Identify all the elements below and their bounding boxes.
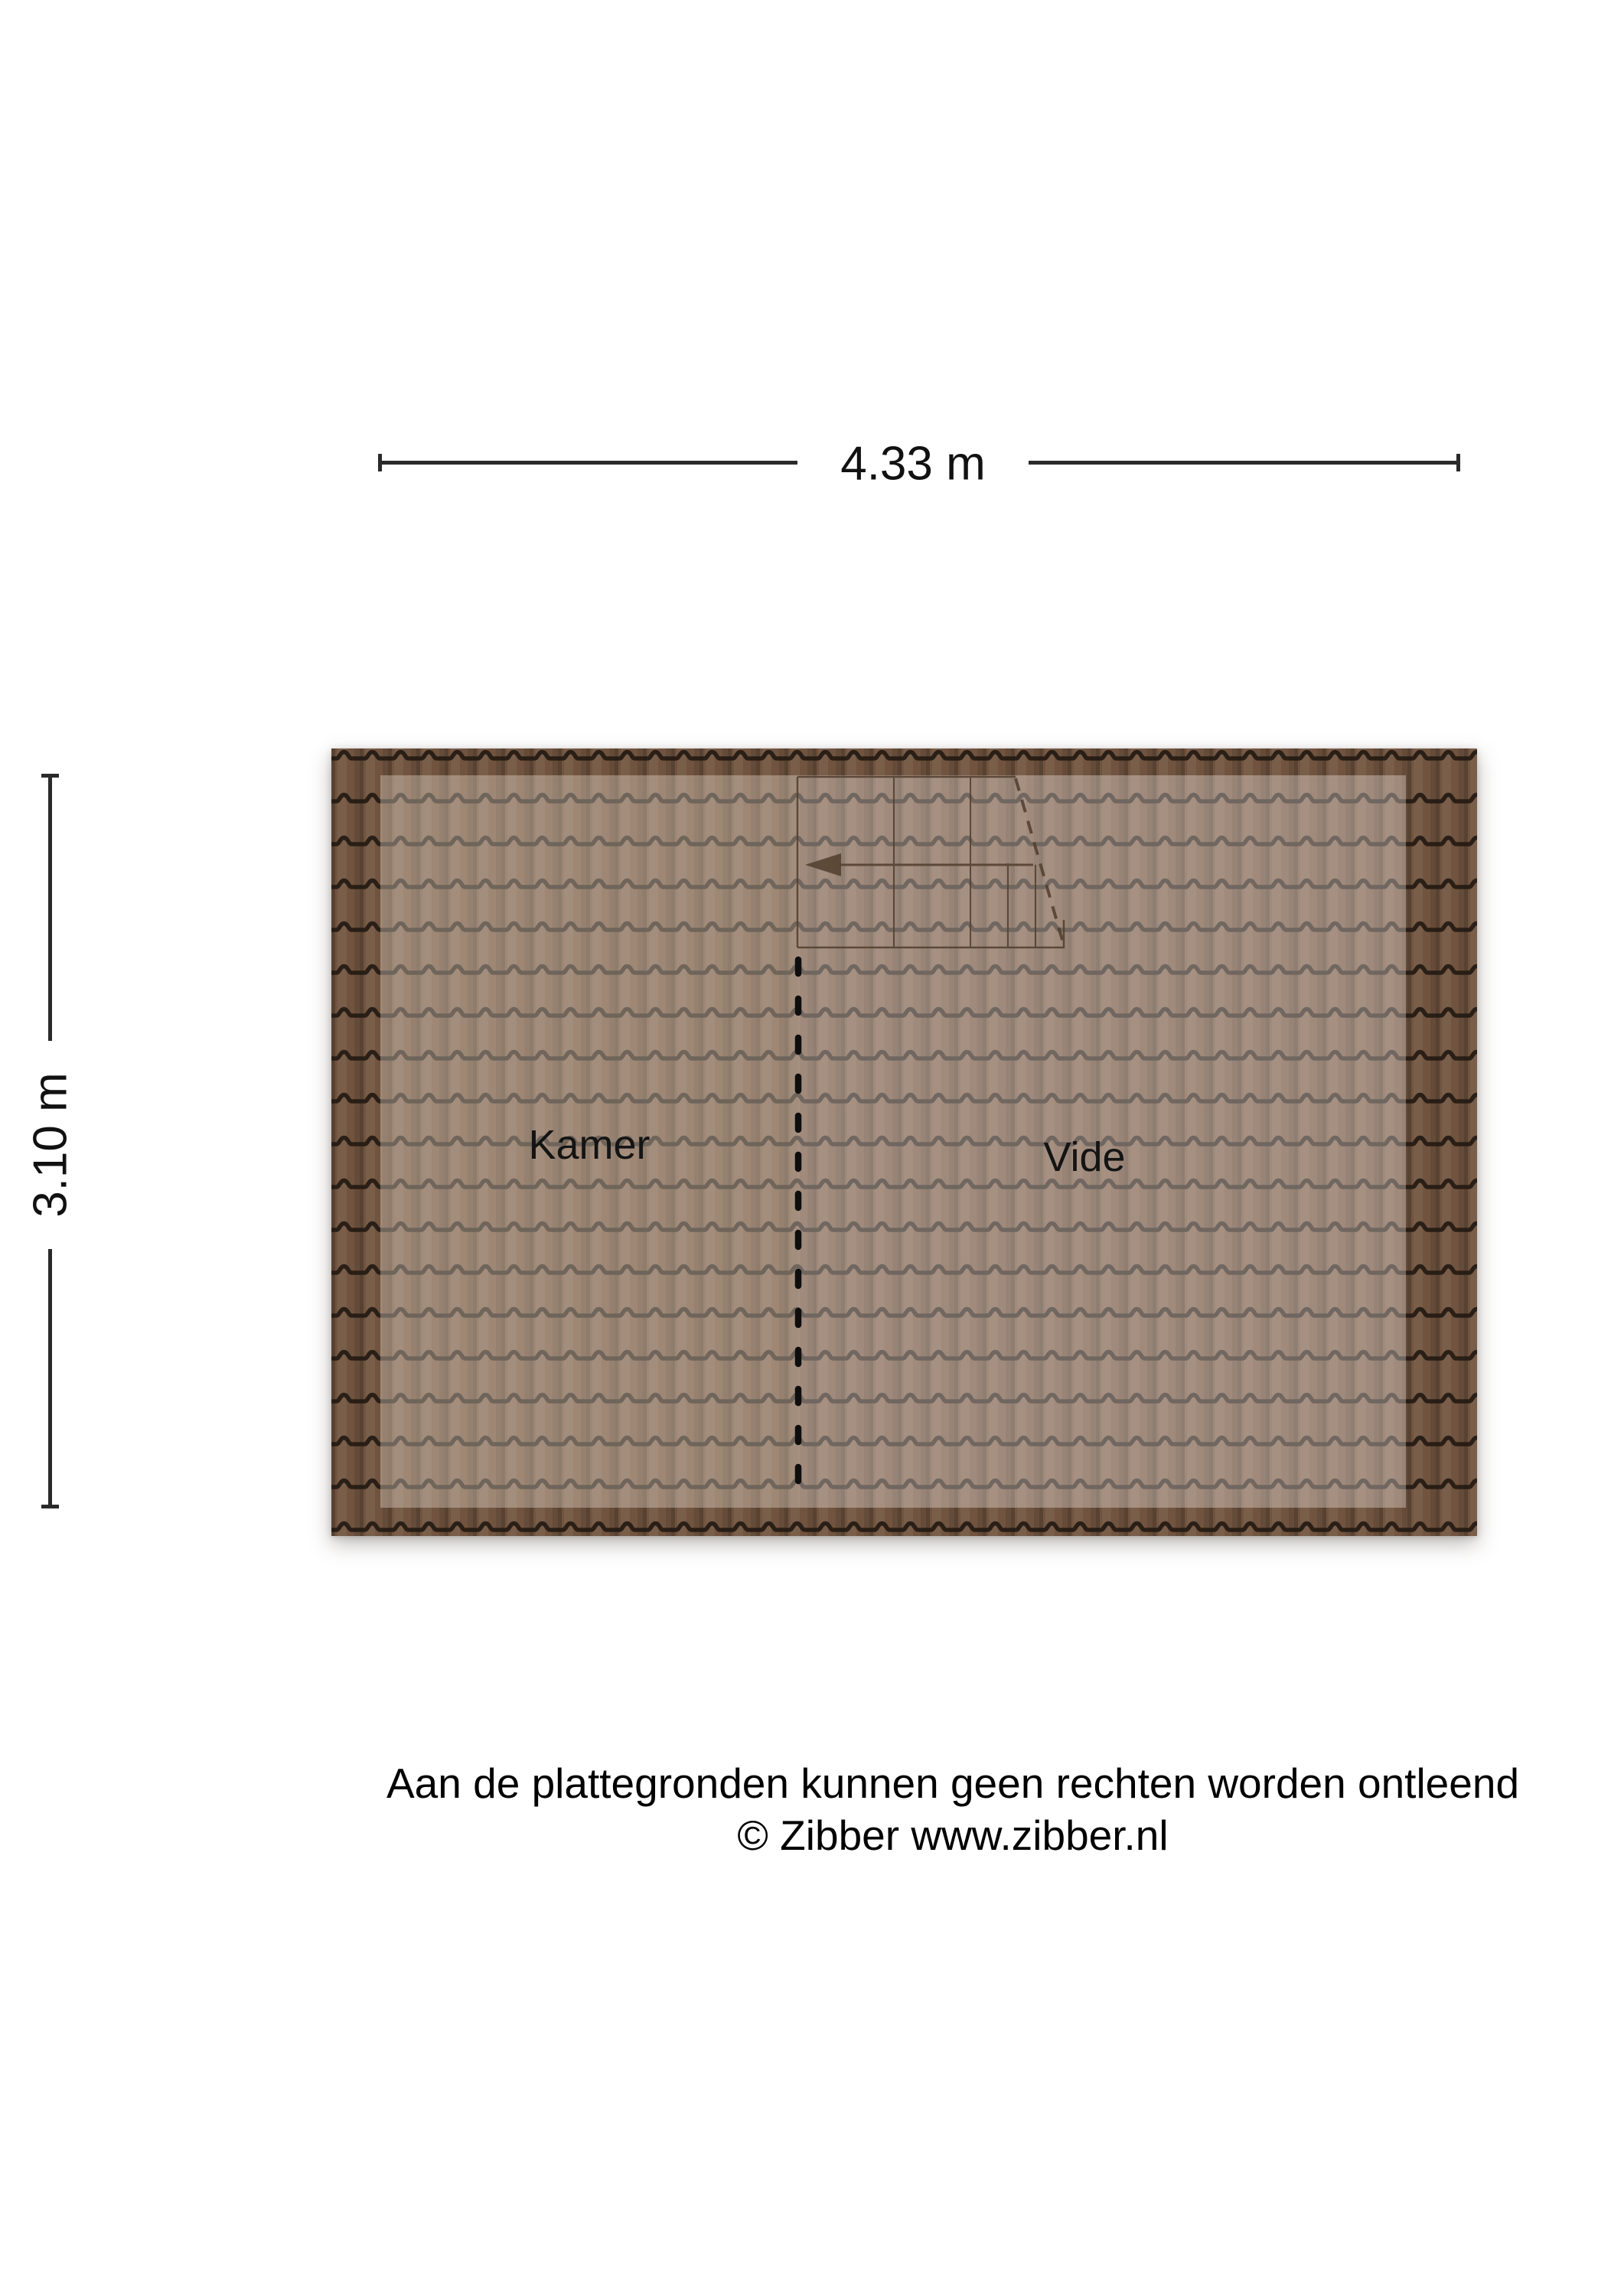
dimension-tick-right [1456, 454, 1460, 471]
floorplan-page: 4.33 m 3.10 m [0, 0, 1624, 2296]
dimension-line-segment [380, 461, 797, 465]
dimension-line-segment [1029, 461, 1459, 465]
dimension-line-segment [48, 1249, 52, 1508]
dimension-line-segment [48, 775, 52, 1041]
disclaimer-text: Aan de plattegronden kunnen geen rechten… [386, 1757, 1519, 1809]
footer: Aan de plattegronden kunnen geen rechten… [386, 1757, 1519, 1861]
dimension-tick-bottom [41, 1505, 59, 1508]
vide-room-label: Vide [1043, 1133, 1125, 1181]
copyright-text: © Zibber www.zibber.nl [386, 1809, 1519, 1861]
attic-floorplan [331, 748, 1477, 1536]
height-dimension-label: 3.10 m [24, 1072, 78, 1218]
kamer-room-label: Kamer [528, 1121, 650, 1169]
width-dimension-label: 4.33 m [840, 437, 986, 491]
roof-plan-drawing [331, 748, 1477, 1536]
